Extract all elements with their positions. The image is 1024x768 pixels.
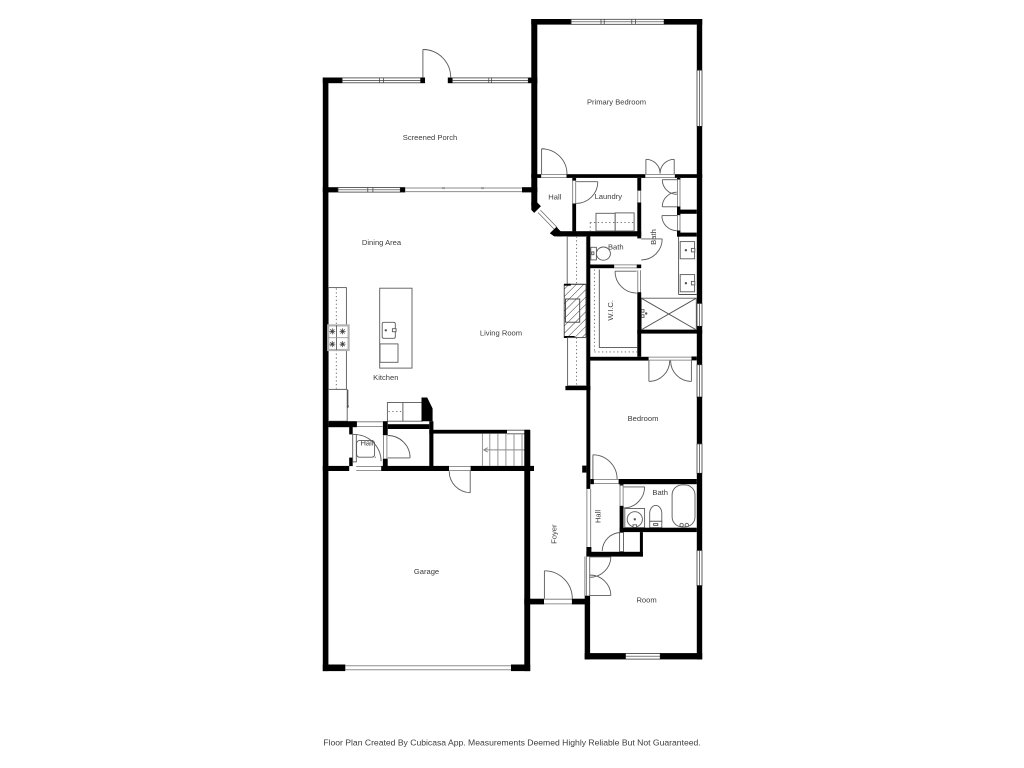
- svg-text:W.I.C.: W.I.C.: [606, 300, 615, 321]
- svg-text:Bath: Bath: [649, 229, 658, 245]
- svg-text:Bath: Bath: [608, 243, 624, 252]
- svg-text:Kitchen: Kitchen: [373, 373, 398, 382]
- svg-text:Hall: Hall: [594, 510, 603, 523]
- svg-text:Laundry: Laundry: [595, 192, 623, 201]
- svg-text:Floor Plan Created By Cubicasa: Floor Plan Created By Cubicasa App. Meas…: [323, 737, 700, 747]
- svg-text:Hall: Hall: [360, 439, 373, 448]
- svg-text:Garage: Garage: [414, 567, 439, 576]
- svg-text:Bedroom: Bedroom: [628, 414, 659, 423]
- svg-text:Dining Area: Dining Area: [362, 238, 402, 247]
- svg-text:Foyer: Foyer: [549, 524, 558, 544]
- svg-text:Primary Bedroom: Primary Bedroom: [587, 98, 646, 107]
- svg-text:Hall: Hall: [548, 192, 561, 201]
- svg-text:Room: Room: [636, 595, 656, 604]
- svg-text:Bath: Bath: [652, 488, 668, 497]
- svg-text:Screened Porch: Screened Porch: [403, 133, 457, 142]
- svg-text:Living Room: Living Room: [480, 329, 522, 338]
